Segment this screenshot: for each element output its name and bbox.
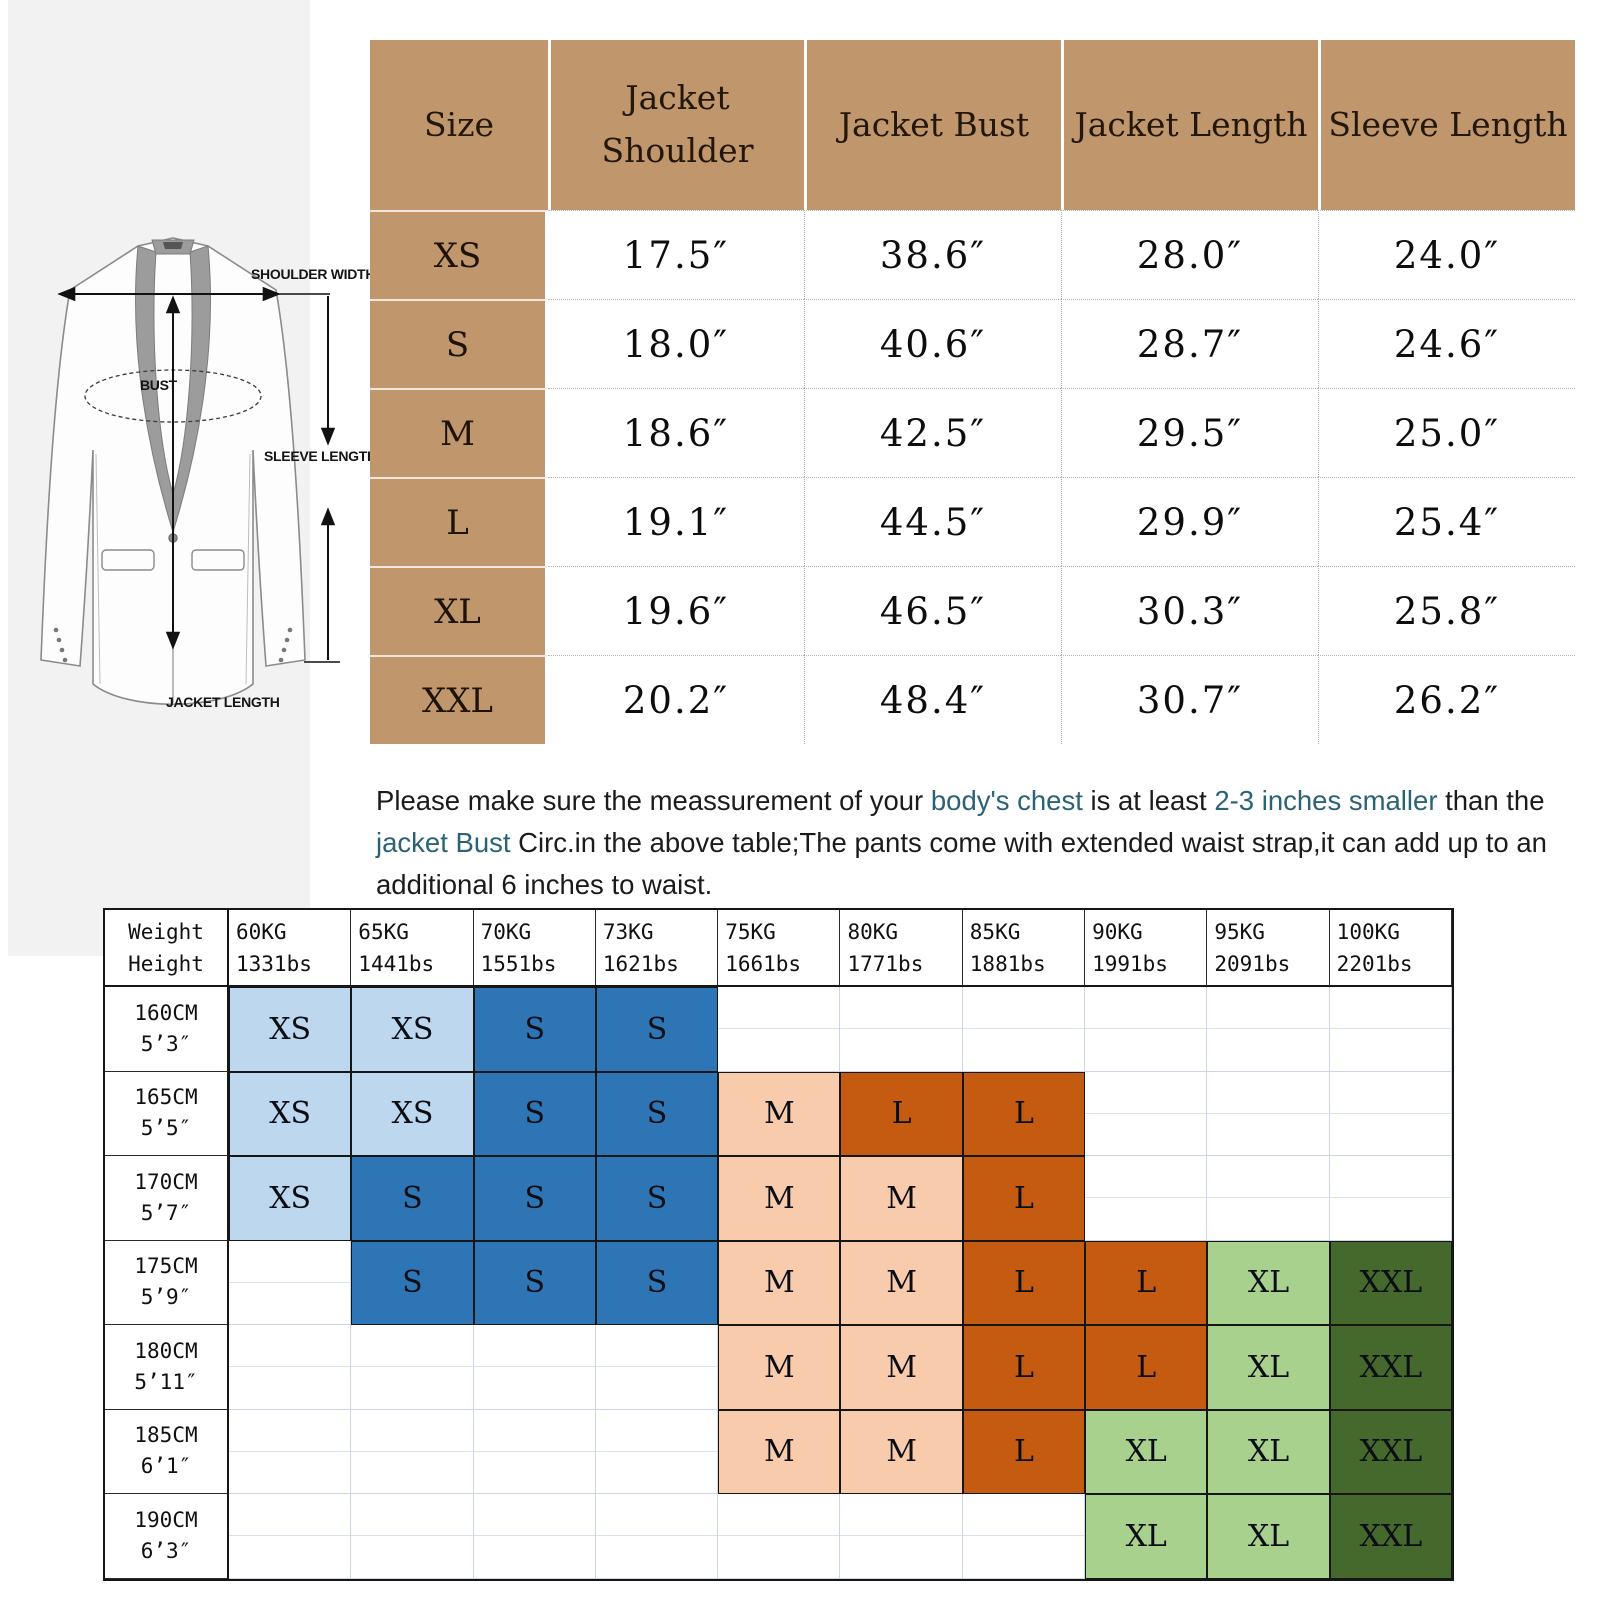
height-cm: 175CM [134,1251,197,1282]
weight-kg: 75KG [725,916,839,948]
fit-size-cell: XXL [1330,1241,1452,1326]
size-cell: XS [370,210,548,299]
fit-size-cell: XS [351,987,473,1072]
fit-size-cell: M [840,1325,962,1410]
weight-lbs: 1331bs [236,948,350,980]
weight-kg: 73KG [603,916,717,948]
height-label-cell: 180CM5’11″ [105,1325,229,1410]
height-cm: 165CM [134,1082,197,1113]
fit-empty-cell [351,1410,473,1495]
fit-empty-cell [1085,987,1207,1072]
weight-header-cell: 80KG1771bs [840,910,962,987]
fit-empty-cell [1330,1156,1452,1241]
fit-size-cell: S [596,987,718,1072]
note-segment: body's chest [931,785,1083,816]
fit-empty-cell [351,1325,473,1410]
fit-empty-cell [596,1494,718,1579]
size-value-cell: 20.2″ [548,655,804,744]
size-value-cell: 24.6″ [1318,299,1575,388]
size-cell: S [370,299,548,388]
fit-size-cell: XL [1085,1410,1207,1495]
fit-size-cell: L [963,1325,1085,1410]
size-value-cell: 30.3″ [1061,566,1318,655]
fit-size-cell: S [474,1241,596,1326]
weight-header-cell: 70KG1551bs [474,910,596,987]
fit-size-cell: S [351,1241,473,1326]
fit-empty-cell [1330,987,1452,1072]
fit-table-corner-cell: WeightHeight [105,910,229,987]
fit-empty-cell [1085,1156,1207,1241]
height-ft: 5’7″ [141,1198,192,1229]
weight-header-cell: 90KG1991bs [1085,910,1207,987]
fit-size-cell: M [718,1072,840,1157]
weight-kg: 60KG [236,916,350,948]
jacket-size-table: SizeJacket ShoulderJacket BustJacket Len… [370,40,1575,744]
height-cm: 185CM [134,1420,197,1451]
height-label-cell: 175CM5’9″ [105,1241,229,1326]
weight-lbs: 1661bs [725,948,839,980]
size-value-cell: 18.0″ [548,299,804,388]
weight-kg: 65KG [358,916,472,948]
fit-size-cell: XS [229,987,351,1072]
measurement-note: Please make sure the meassurement of you… [376,780,1556,906]
fit-empty-cell [474,1325,596,1410]
fit-size-cell: S [596,1156,718,1241]
height-label-cell: 170CM5’7″ [105,1156,229,1241]
size-value-cell: 28.7″ [1061,299,1318,388]
size-value-cell: 38.6″ [804,210,1061,299]
note-segment: than the [1437,785,1544,816]
size-value-cell: 30.7″ [1061,655,1318,744]
fit-size-cell: M [840,1241,962,1326]
size-value-cell: 44.5″ [804,477,1061,566]
fit-empty-cell [718,987,840,1072]
weight-kg: 95KG [1214,916,1328,948]
height-label-cell: 165CM5’5″ [105,1072,229,1157]
fit-empty-cell [474,1410,596,1495]
fit-empty-cell [963,987,1085,1072]
fit-size-cell: XL [1207,1241,1329,1326]
fit-size-cell: S [474,987,596,1072]
fit-size-cell: XXL [1330,1494,1452,1579]
sleeve-length-label: SLEEVE LENGTH [264,448,377,464]
size-table-header-cell: Jacket Bust [804,40,1061,210]
size-value-cell: 24.0″ [1318,210,1575,299]
size-cell: XL [370,566,548,655]
fit-size-cell: S [474,1072,596,1157]
corner-height-label: Height [128,948,204,980]
jacket-diagram [16,232,346,772]
weight-lbs: 1991bs [1092,948,1206,980]
weight-lbs: 1771bs [847,948,961,980]
fit-size-cell: L [963,1072,1085,1157]
fit-size-cell: L [1085,1325,1207,1410]
weight-kg: 90KG [1092,916,1206,948]
pocket-right [192,550,244,570]
fit-size-cell: S [596,1241,718,1326]
size-value-cell: 28.0″ [1061,210,1318,299]
fit-size-cell: XS [351,1072,473,1157]
fit-size-cell: M [840,1410,962,1495]
fit-size-cell: L [963,1241,1085,1326]
weight-kg: 100KG [1337,916,1451,948]
size-cell: XXL [370,655,548,744]
size-value-cell: 25.4″ [1318,477,1575,566]
fit-empty-cell [840,1494,962,1579]
fit-size-cell: M [840,1156,962,1241]
pocket-left [102,550,154,570]
fit-size-cell: XXL [1330,1325,1452,1410]
size-cell: M [370,388,548,477]
fit-empty-cell [229,1494,351,1579]
fit-empty-cell [596,1410,718,1495]
fit-size-cell: M [718,1156,840,1241]
fit-size-cell: S [474,1156,596,1241]
note-segment: Circ.in the above table;The pants come w… [376,827,1547,900]
fit-size-cell: M [718,1241,840,1326]
fit-size-cell: XL [1207,1325,1329,1410]
height-ft: 5’3″ [141,1029,192,1060]
jacket-length-label: JACKET LENGTH [166,694,280,710]
fit-empty-cell [596,1325,718,1410]
fit-size-cell: XL [1207,1410,1329,1495]
weight-kg: 80KG [847,916,961,948]
fit-size-cell: XS [229,1156,351,1241]
size-value-cell: 18.6″ [548,388,804,477]
note-segment: 2-3 inches smaller [1214,785,1437,816]
weight-header-cell: 75KG1661bs [718,910,840,987]
size-value-cell: 19.1″ [548,477,804,566]
fit-size-cell: S [351,1156,473,1241]
weight-header-cell: 85KG1881bs [963,910,1085,987]
height-ft: 5’9″ [141,1282,192,1313]
fit-size-cell: L [840,1072,962,1157]
weight-kg: 85KG [970,916,1084,948]
note-segment: is at least [1083,785,1214,816]
weight-header-cell: 73KG1621bs [596,910,718,987]
height-weight-fit-table: WeightHeight60KG1331bs65KG1441bs70KG1551… [103,908,1454,1581]
size-value-cell: 40.6″ [804,299,1061,388]
height-label-cell: 160CM5’3″ [105,987,229,1072]
height-label-cell: 190CM6’3″ [105,1494,229,1579]
fit-empty-cell [351,1494,473,1579]
size-value-cell: 25.8″ [1318,566,1575,655]
fit-empty-cell [229,1325,351,1410]
weight-header-cell: 100KG2201bs [1330,910,1452,987]
fit-empty-cell [718,1494,840,1579]
fit-size-cell: L [1085,1241,1207,1326]
fit-size-cell: XS [229,1072,351,1157]
size-table-header-cell: Jacket Shoulder [548,40,804,210]
fit-empty-cell [840,987,962,1072]
fit-empty-cell [229,1410,351,1495]
fit-empty-cell [229,1241,351,1326]
height-ft: 6’3″ [141,1536,192,1567]
bust-label: BUST [140,377,177,393]
weight-lbs: 2201bs [1337,948,1451,980]
fit-empty-cell [474,1494,596,1579]
fit-size-cell: XL [1207,1494,1329,1579]
weight-header-cell: 65KG1441bs [351,910,473,987]
fit-size-cell: L [963,1156,1085,1241]
fit-size-cell: S [596,1072,718,1157]
size-value-cell: 46.5″ [804,566,1061,655]
weight-lbs: 1621bs [603,948,717,980]
fit-size-cell: XXL [1330,1410,1452,1495]
collar-loop [163,242,183,249]
size-value-cell: 29.9″ [1061,477,1318,566]
fit-size-cell: M [718,1410,840,1495]
size-table-header-cell: Sleeve Length [1318,40,1575,210]
size-table-header-cell: Jacket Length [1061,40,1318,210]
weight-lbs: 1551bs [481,948,595,980]
height-cm: 190CM [134,1505,197,1536]
fit-empty-cell [963,1494,1085,1579]
weight-lbs: 1441bs [358,948,472,980]
fit-size-cell: M [718,1325,840,1410]
weight-kg: 70KG [481,916,595,948]
size-value-cell: 19.6″ [548,566,804,655]
diagram-panel: SHOULDER WIDTH BUST SLEEVE LENGTH JACKET… [8,0,310,956]
fit-empty-cell [1207,987,1329,1072]
size-chart-page: SHOULDER WIDTH BUST SLEEVE LENGTH JACKET… [0,0,1600,1600]
note-segment: Please make sure the meassurement of you… [376,785,931,816]
size-cell: L [370,477,548,566]
height-cm: 160CM [134,998,197,1029]
size-value-cell: 29.5″ [1061,388,1318,477]
fit-empty-cell [1330,1072,1452,1157]
height-ft: 6’1″ [141,1451,192,1482]
weight-lbs: 1881bs [970,948,1084,980]
weight-lbs: 2091bs [1214,948,1328,980]
size-value-cell: 42.5″ [804,388,1061,477]
note-segment: jacket Bust [376,827,511,858]
weight-header-cell: 95KG2091bs [1207,910,1329,987]
fit-empty-cell [1085,1072,1207,1157]
height-ft: 5’11″ [134,1367,197,1398]
weight-header-cell: 60KG1331bs [229,910,351,987]
height-cm: 170CM [134,1167,197,1198]
fit-empty-cell [1207,1072,1329,1157]
fit-size-cell: XL [1085,1494,1207,1579]
size-value-cell: 17.5″ [548,210,804,299]
size-table-header-cell: Size [370,40,548,210]
fit-size-cell: L [963,1410,1085,1495]
shoulder-width-label: SHOULDER WIDTH [251,266,375,282]
height-cm: 180CM [134,1336,197,1367]
height-label-cell: 185CM6’1″ [105,1410,229,1495]
size-value-cell: 26.2″ [1318,655,1575,744]
height-ft: 5’5″ [141,1113,192,1144]
corner-weight-label: Weight [128,916,204,948]
fit-empty-cell [1207,1156,1329,1241]
size-value-cell: 48.4″ [804,655,1061,744]
size-value-cell: 25.0″ [1318,388,1575,477]
